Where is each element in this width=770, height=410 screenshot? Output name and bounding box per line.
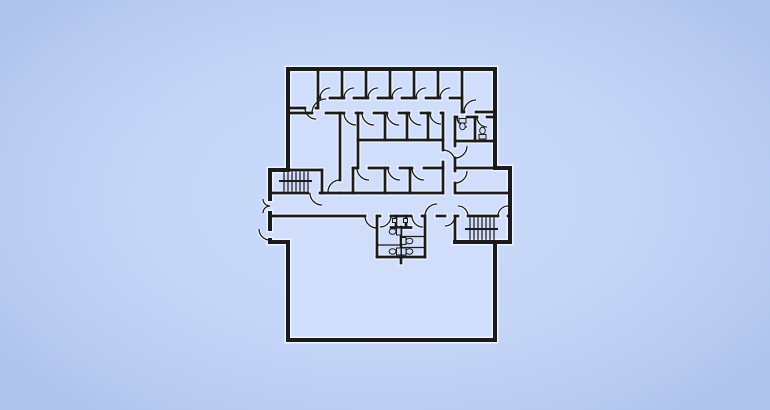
fixture-tank	[397, 228, 402, 235]
fixture-bowl	[389, 229, 396, 235]
floor-plan-svg	[0, 0, 770, 410]
fixture-tank	[479, 135, 486, 140]
fixture-tank	[404, 219, 408, 223]
fixture-bowl	[480, 127, 486, 134]
toilet-fixture	[479, 127, 486, 139]
fixture-tank	[393, 219, 397, 223]
fixture-tank	[402, 248, 407, 255]
toilet-fixture	[402, 248, 413, 255]
toilet-fixture	[389, 228, 401, 235]
toilet-fixture	[402, 238, 413, 245]
toilet-fixture	[459, 119, 466, 130]
sink-fixture	[393, 219, 397, 223]
fixture-bowl	[389, 249, 396, 255]
fixture-tank	[459, 119, 466, 124]
fixture-bowl	[406, 238, 413, 244]
floor-plan-canvas	[0, 0, 770, 410]
fixture-bowl	[406, 249, 413, 255]
fixture-tank	[397, 248, 402, 255]
fixture-bowl	[460, 123, 466, 130]
toilet-fixture	[389, 248, 401, 255]
fixture-tank	[402, 238, 407, 245]
sink-fixture	[404, 219, 408, 223]
